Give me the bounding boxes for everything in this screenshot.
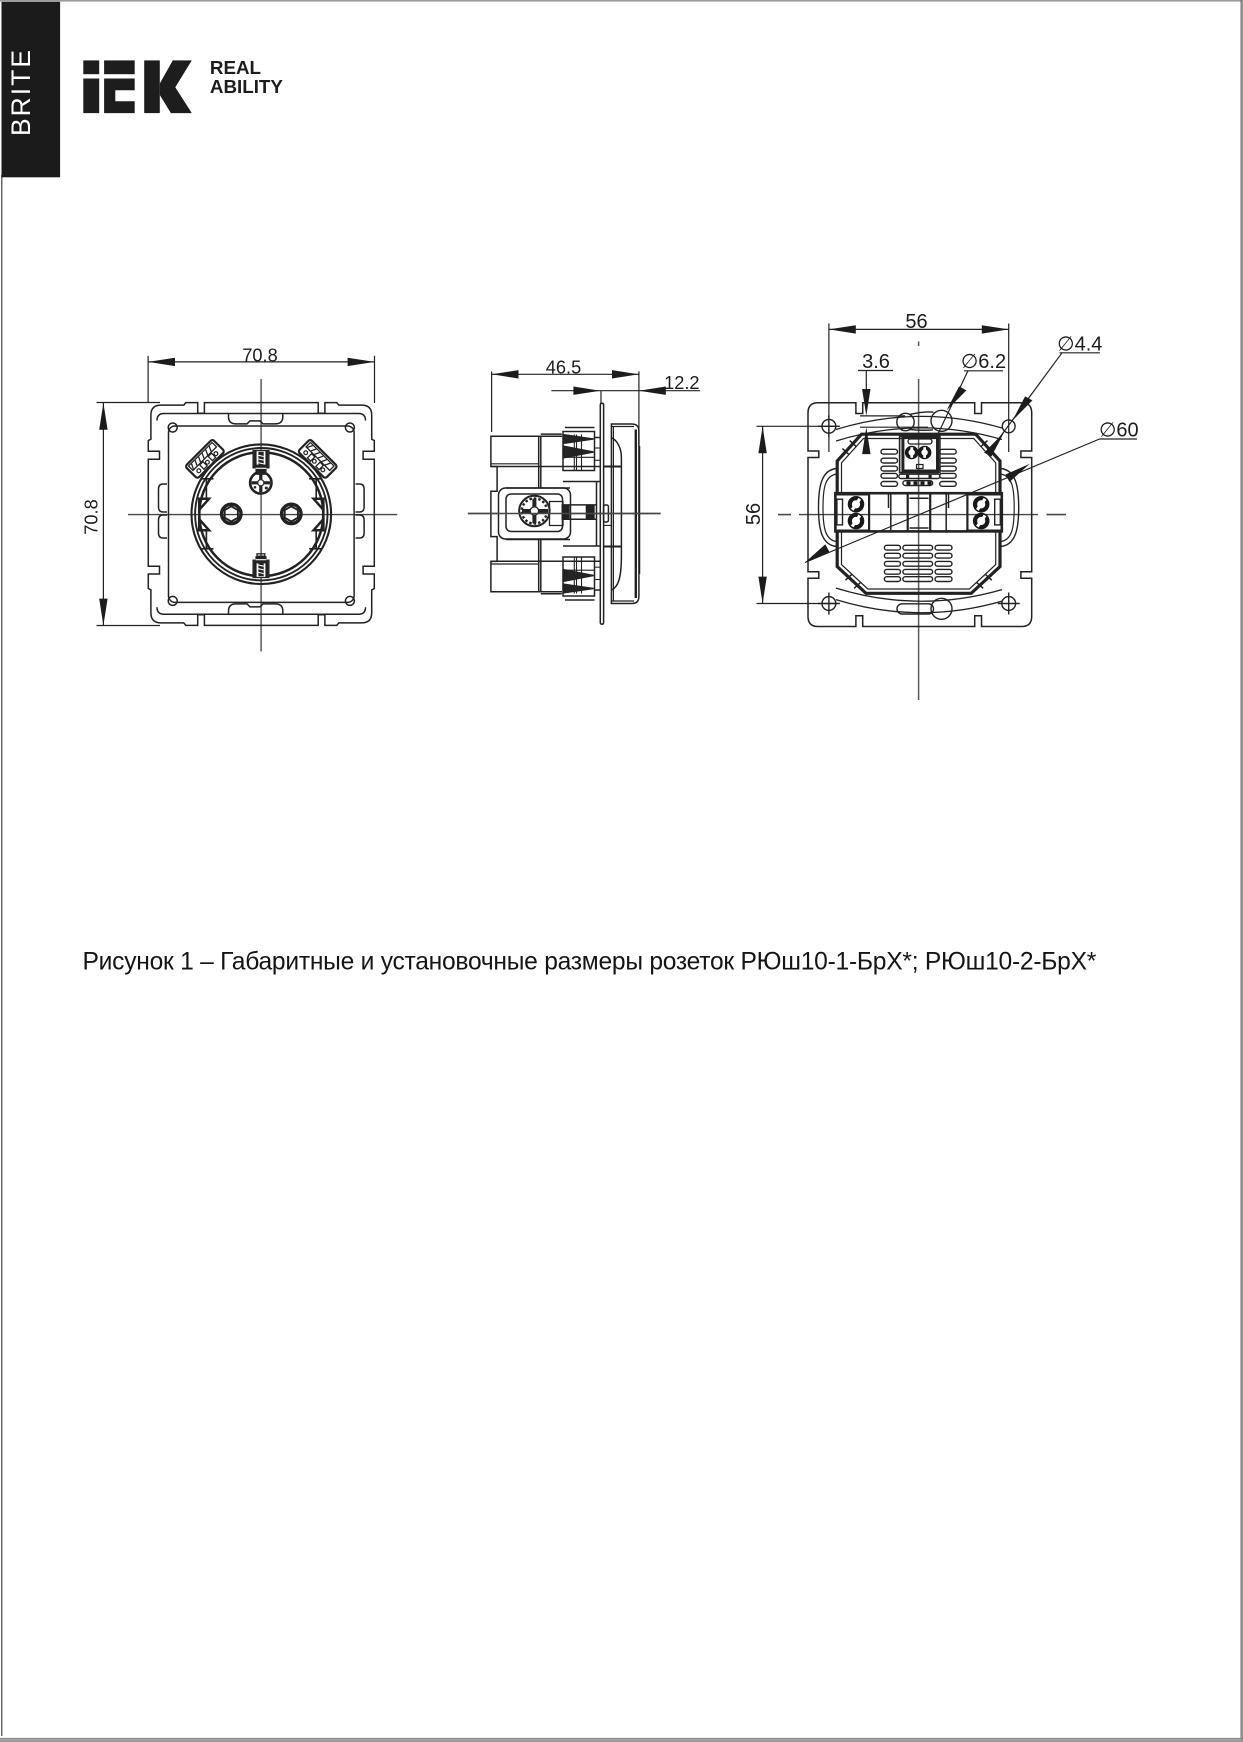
svg-text:∅4.4: ∅4.4 [1057, 333, 1102, 355]
svg-text:BRITE: BRITE [6, 48, 36, 136]
svg-text:46.5: 46.5 [546, 357, 581, 377]
svg-text:ABILITY: ABILITY [210, 76, 284, 97]
svg-text:70.8: 70.8 [82, 499, 102, 534]
svg-text:70.8: 70.8 [242, 345, 277, 365]
svg-text:∅6.2: ∅6.2 [961, 351, 1006, 373]
svg-text:REAL: REAL [210, 57, 261, 78]
svg-text:56: 56 [743, 503, 765, 525]
svg-text:12.2: 12.2 [664, 373, 699, 393]
svg-text:∅60: ∅60 [1099, 420, 1139, 442]
svg-text:Рисунок 1 – Габаритные и устан: Рисунок 1 – Габаритные и установочные ра… [83, 948, 1097, 975]
svg-text:56: 56 [905, 311, 927, 333]
svg-text:3.6: 3.6 [862, 351, 890, 373]
